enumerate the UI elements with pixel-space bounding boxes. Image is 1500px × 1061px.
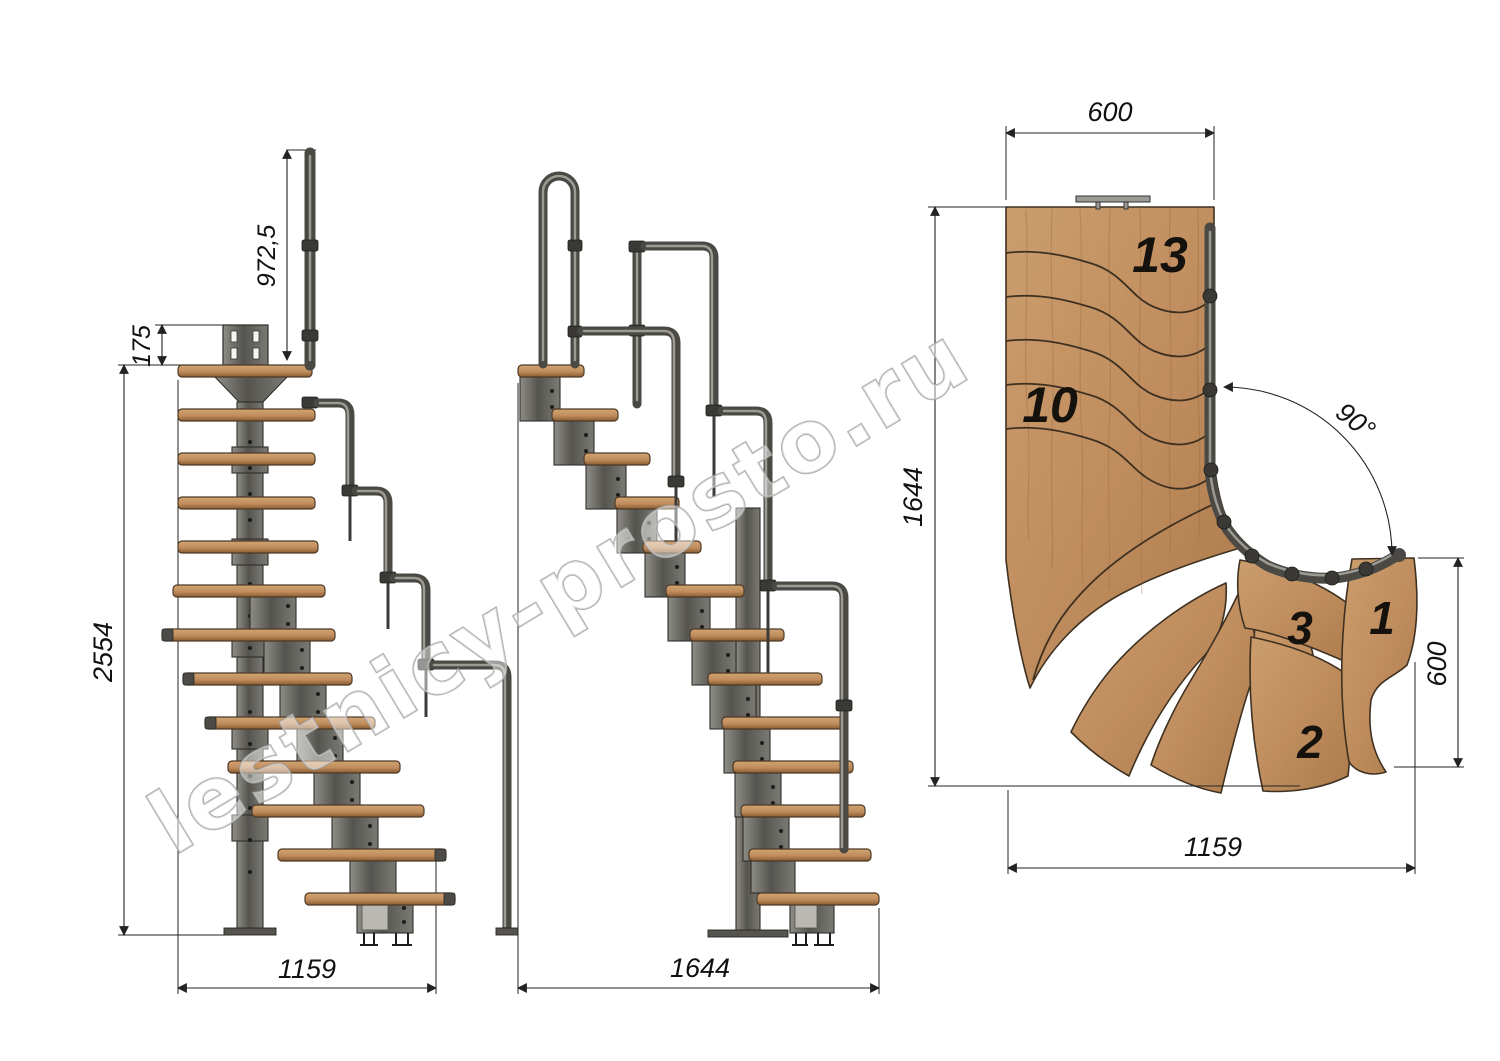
tread-end-cap [183,673,194,685]
rail-segment [318,403,350,489]
dim-turn-angle: 90° [1330,397,1381,446]
tread [690,629,784,641]
plate-slot [253,331,259,342]
tread [749,849,871,861]
tread [733,761,853,773]
step-label-2: 2 [1296,716,1323,768]
dim-mount-plate: 175 [128,325,156,367]
central-column [237,402,263,930]
tread-end-cap [435,849,446,861]
plate-slot [231,331,237,342]
tread [722,717,846,729]
tread [666,585,744,597]
dim-front-width: 1159 [278,954,336,984]
tread [708,673,822,685]
technical-drawing-page: 2554 175 972,5 1159 [0,0,1500,1061]
rail-clamp [568,240,582,251]
rail-segment [356,491,388,577]
rail-foot [496,928,518,935]
tread [178,409,315,421]
plate-slot [231,348,237,359]
rail-joint [1203,289,1217,303]
rail-clamp [302,240,318,251]
step-label-3: 3 [1287,602,1313,654]
anchor-bolts [792,933,834,945]
step-label-1: 1 [1369,592,1395,644]
tread [178,497,315,509]
rail-joint [1325,571,1339,585]
dim-handrail-height: 972,5 [253,225,281,288]
tread [178,541,318,553]
step-label-13: 13 [1132,227,1188,283]
rail-joint [1285,567,1299,581]
rail-clamp [302,330,318,341]
front-elevation-view: 2554 175 972,5 1159 [88,150,518,994]
wall-mount-plate [223,325,268,365]
tread [584,453,650,465]
dim-total-height: 2554 [88,622,118,683]
tread [178,453,315,465]
tread [162,629,335,641]
tread [757,893,879,905]
column-funnel-bracket [215,377,287,402]
rail-joint [1217,515,1231,529]
rail-joint [1245,549,1259,563]
tread [178,365,312,377]
dim-plan-depth: 1644 [898,467,928,527]
plate-slot [253,348,259,359]
tread [552,409,618,421]
tread-end-cap [444,893,455,905]
tread [305,893,455,905]
column-foot-flange [708,930,788,937]
fan-step-1 [1342,558,1417,774]
handrail-end-cap [1392,548,1406,562]
dim-depth: 1644 [670,953,730,983]
plan-view: 13 10 3 2 1 600 [898,97,1464,874]
stair-drawing-canvas: 2554 175 972,5 1159 [0,0,1500,1061]
tread-end-cap [162,629,173,641]
tread-end-cap [205,717,216,729]
rail-joint [1359,562,1373,576]
rail-clamp [836,700,852,711]
fan-step-2 [1250,637,1350,791]
step-label-10: 10 [1022,377,1078,433]
rail-joint [1204,463,1218,477]
rail-joint [1203,383,1217,397]
anchor-bolts [360,933,412,945]
dim-plan-width: 1159 [1184,832,1242,862]
column-foot-flange [224,928,276,935]
tread [173,585,325,597]
handrail-run [1210,228,1396,578]
handrail-plan [1203,228,1406,585]
dim-upper-flight-width: 600 [1087,97,1132,127]
tread [278,849,446,861]
dim-lower-flight-width: 600 [1422,641,1452,686]
